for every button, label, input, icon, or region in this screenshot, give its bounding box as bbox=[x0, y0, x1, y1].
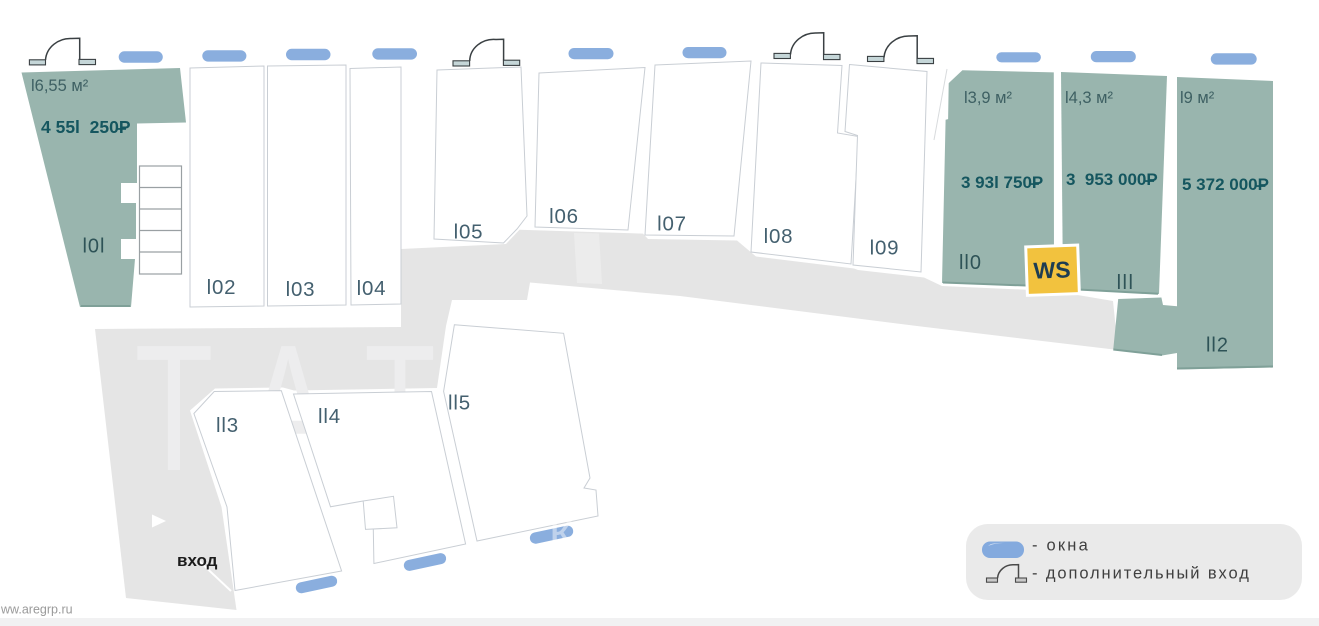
svg-text:вход: вход bbox=[177, 551, 218, 570]
svg-text:К: К bbox=[549, 510, 575, 559]
svg-text:l9 м²: l9 м² bbox=[1180, 89, 1215, 107]
svg-text:l05: l05 bbox=[454, 221, 484, 244]
svg-text:l6,55 м²: l6,55 м² bbox=[31, 77, 89, 95]
svg-text:ll0: ll0 bbox=[959, 252, 982, 274]
svg-text:ww.aregrp.ru: ww.aregrp.ru bbox=[0, 603, 73, 617]
svg-text:l09: l09 bbox=[870, 237, 900, 260]
svg-text:- окна: - окна bbox=[1032, 537, 1090, 555]
svg-text:l07: l07 bbox=[657, 213, 687, 236]
svg-text:WS: WS bbox=[1033, 256, 1071, 283]
svg-text:- дополнительный вход: - дополнительный вход bbox=[1032, 565, 1251, 583]
svg-text:ll5: ll5 bbox=[448, 392, 471, 415]
svg-text:l4,3 м²: l4,3 м² bbox=[1065, 89, 1114, 107]
svg-text:3 93l 750Р: 3 93l 750Р bbox=[961, 173, 1043, 192]
svg-text:l03: l03 bbox=[286, 278, 316, 301]
svg-text:l02: l02 bbox=[207, 276, 237, 299]
svg-text:ll3: ll3 bbox=[216, 414, 239, 437]
svg-text:l0l: l0l bbox=[82, 236, 105, 258]
svg-text:l3,9 м²: l3,9 м² bbox=[964, 89, 1013, 107]
svg-text:lll: lll bbox=[1117, 272, 1135, 294]
svg-text:4 55l 250Р: 4 55l 250Р bbox=[41, 117, 131, 137]
svg-text:l08: l08 bbox=[764, 225, 794, 248]
svg-text:3 953 000Р: 3 953 000Р bbox=[1066, 170, 1158, 189]
svg-text:5 372 000Р: 5 372 000Р bbox=[1182, 175, 1269, 194]
svg-text:ll4: ll4 bbox=[318, 405, 341, 428]
svg-text:l04: l04 bbox=[357, 277, 387, 300]
svg-text:l06: l06 bbox=[549, 205, 579, 228]
svg-text:ll2: ll2 bbox=[1206, 335, 1229, 357]
